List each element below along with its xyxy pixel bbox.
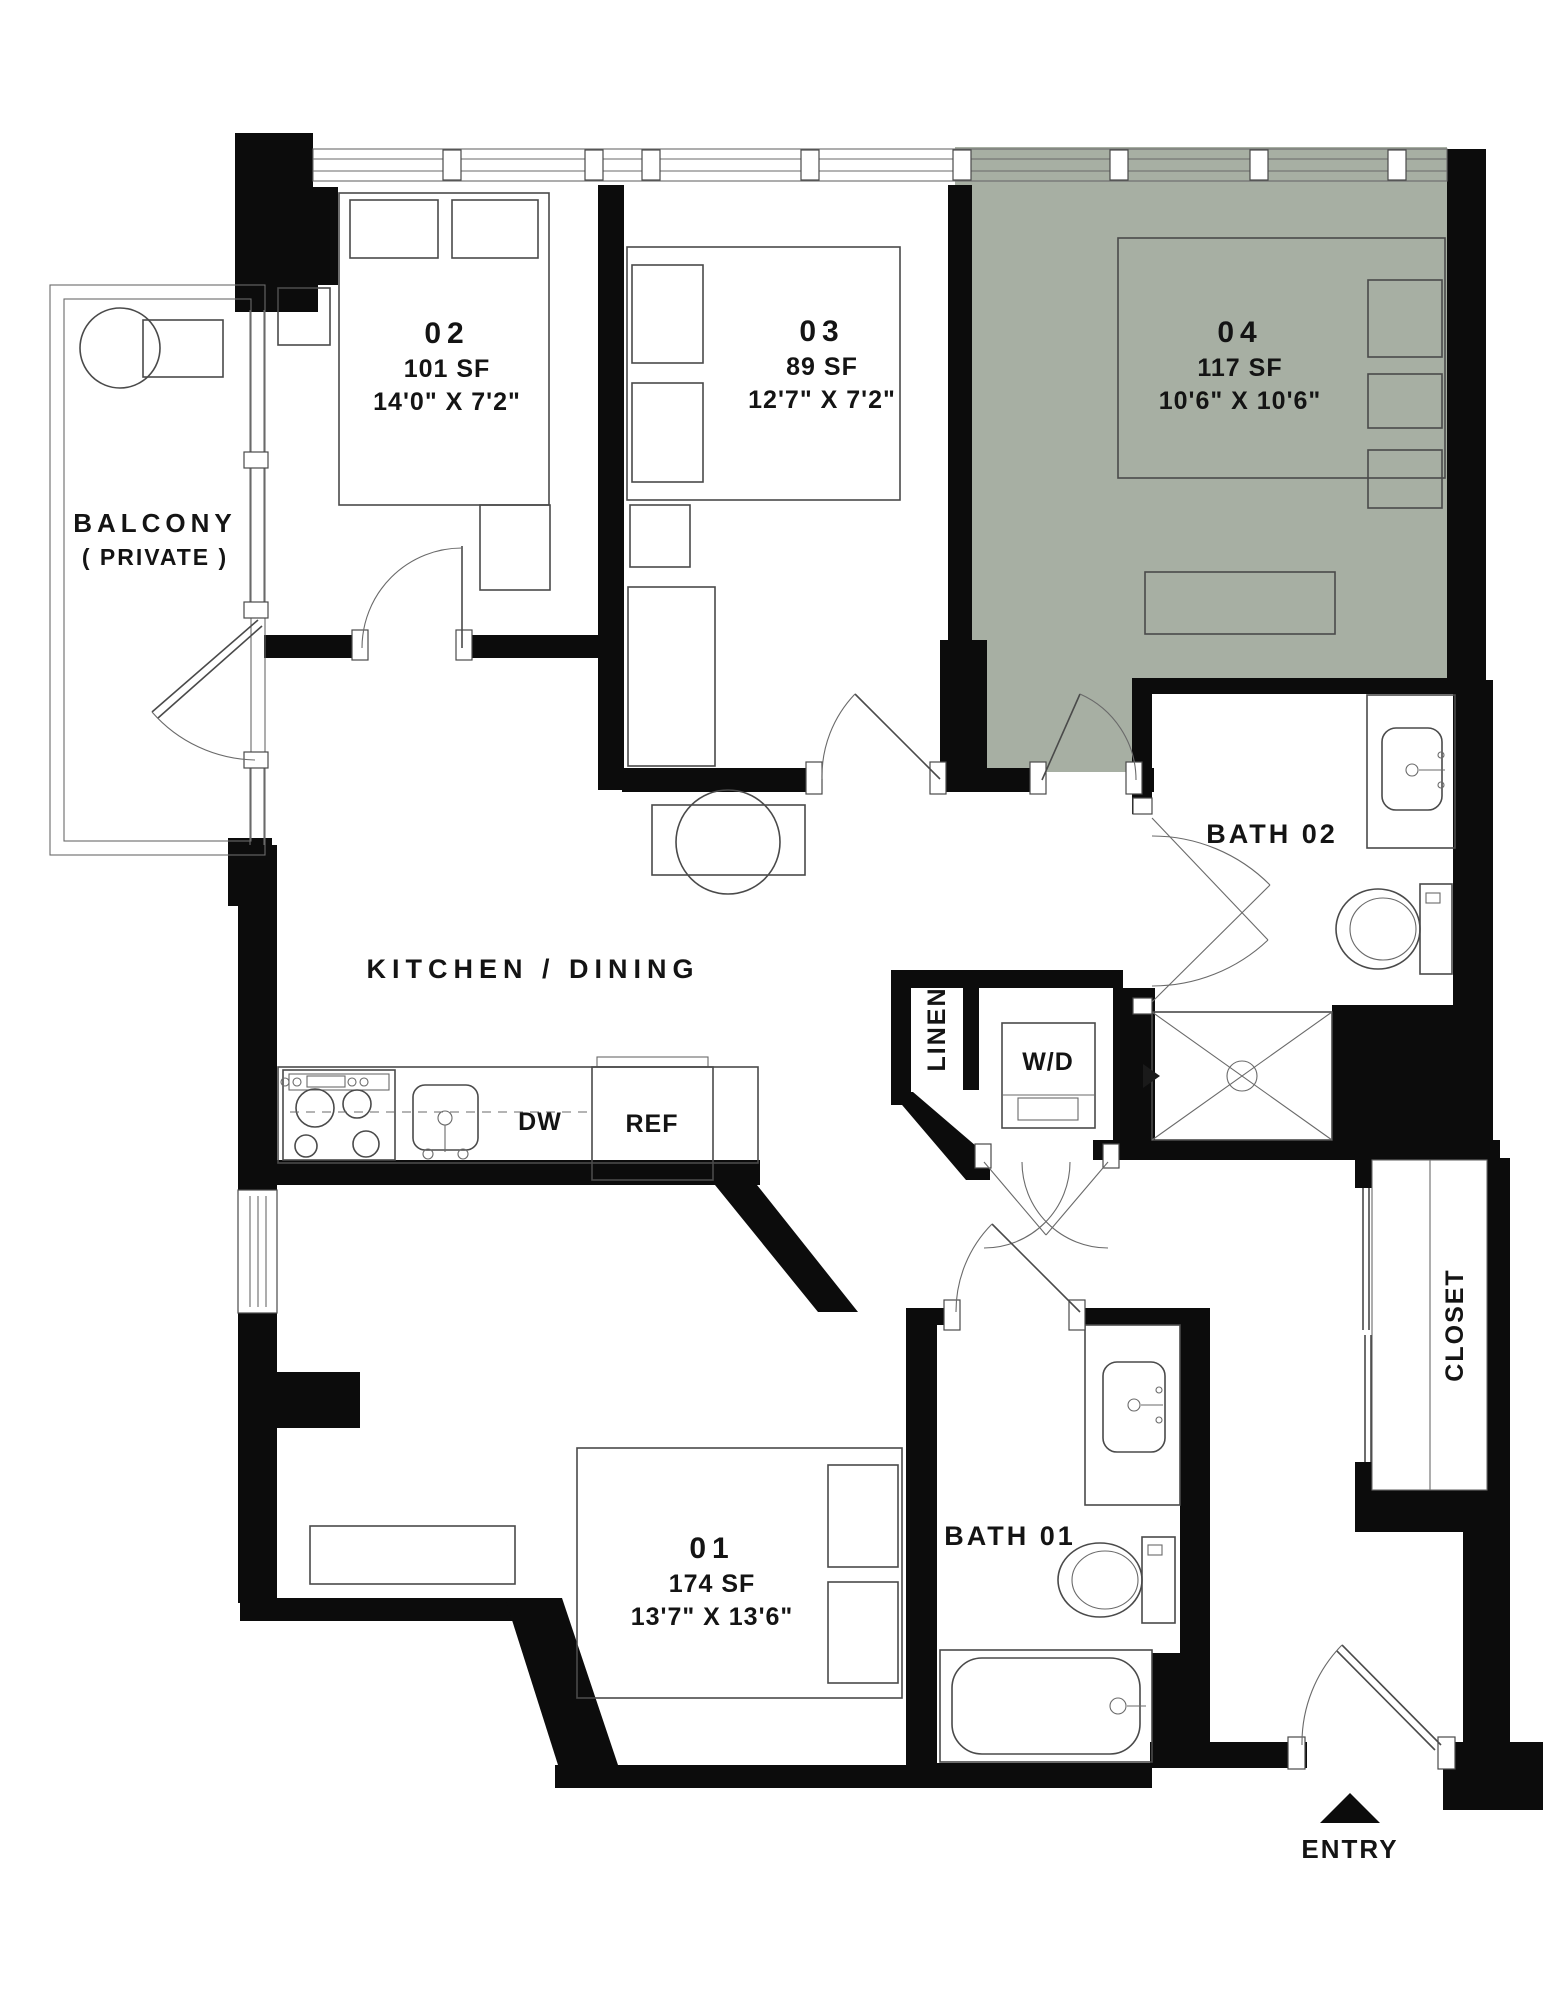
- bed-icon: [627, 247, 900, 500]
- refrigerator-label: REF: [626, 1110, 679, 1138]
- sink-icon: [413, 1085, 478, 1159]
- room-01-area: 174 SF: [669, 1570, 756, 1598]
- room-04-area: 117 SF: [1197, 354, 1282, 382]
- balcony-label: BALCONY: [73, 508, 237, 538]
- room-01-number: 01: [689, 1532, 734, 1565]
- nightstand-icon: [630, 505, 690, 567]
- washer-dryer-label: W/D: [1022, 1048, 1074, 1076]
- entry-arrow-icon: [1320, 1793, 1380, 1823]
- entry: [1288, 1645, 1455, 1823]
- closet-label: CLOSET: [1441, 1268, 1469, 1381]
- room-04-dims: 10'6" X 10'6": [1159, 387, 1322, 415]
- vanity-sink-icon: [1367, 695, 1455, 848]
- vanity-sink-icon: [1085, 1325, 1180, 1505]
- window-mullions: [443, 150, 1406, 180]
- bench-icon: [480, 505, 550, 590]
- room-02-area: 101 SF: [404, 355, 491, 383]
- floor-plan: 02 101 SF 14'0" X 7'2" 03 89 SF 12'7" X …: [0, 0, 1546, 2000]
- dresser-icon: [310, 1526, 515, 1584]
- bath-02-label: BATH 02: [1206, 819, 1338, 849]
- balcony-private-label: ( PRIVATE ): [82, 544, 228, 570]
- room-03-number: 03: [799, 315, 844, 348]
- room-02-number: 02: [424, 317, 469, 350]
- dining-table-icon: [652, 790, 805, 894]
- room-03-door-swing: [806, 694, 946, 794]
- room-02-door-swing: [352, 546, 472, 660]
- desk-icon: [628, 587, 715, 766]
- balcony-door-swing: [152, 620, 262, 760]
- entry-label: ENTRY: [1301, 1834, 1398, 1864]
- shower-icon: [1143, 1012, 1332, 1140]
- dishwasher-label: DW: [518, 1108, 562, 1136]
- linen-label: LINEN: [923, 987, 951, 1072]
- room-02-dims: 14'0" X 7'2": [373, 388, 521, 416]
- closet-sliding-door: [1363, 1188, 1371, 1462]
- side-window: [238, 1190, 277, 1313]
- toilet-icon: [1336, 884, 1452, 974]
- room-04-number: 04: [1217, 316, 1262, 349]
- balcony: [50, 285, 268, 855]
- stove-icon: [281, 1070, 395, 1160]
- room-03: [627, 247, 946, 794]
- room-03-dims: 12'7" X 7'2": [748, 386, 896, 414]
- bathtub-icon: [940, 1650, 1152, 1762]
- bath-01-label: BATH 01: [944, 1521, 1076, 1551]
- kitchen-label: KITCHEN / DINING: [366, 954, 699, 984]
- bath-01-door-swing: [944, 1224, 1085, 1330]
- entry-door-swing: [1302, 1645, 1441, 1750]
- bath-01: [940, 1224, 1180, 1762]
- room-03-area: 89 SF: [786, 353, 858, 381]
- room-01-dims: 13'7" X 13'6": [631, 1603, 794, 1631]
